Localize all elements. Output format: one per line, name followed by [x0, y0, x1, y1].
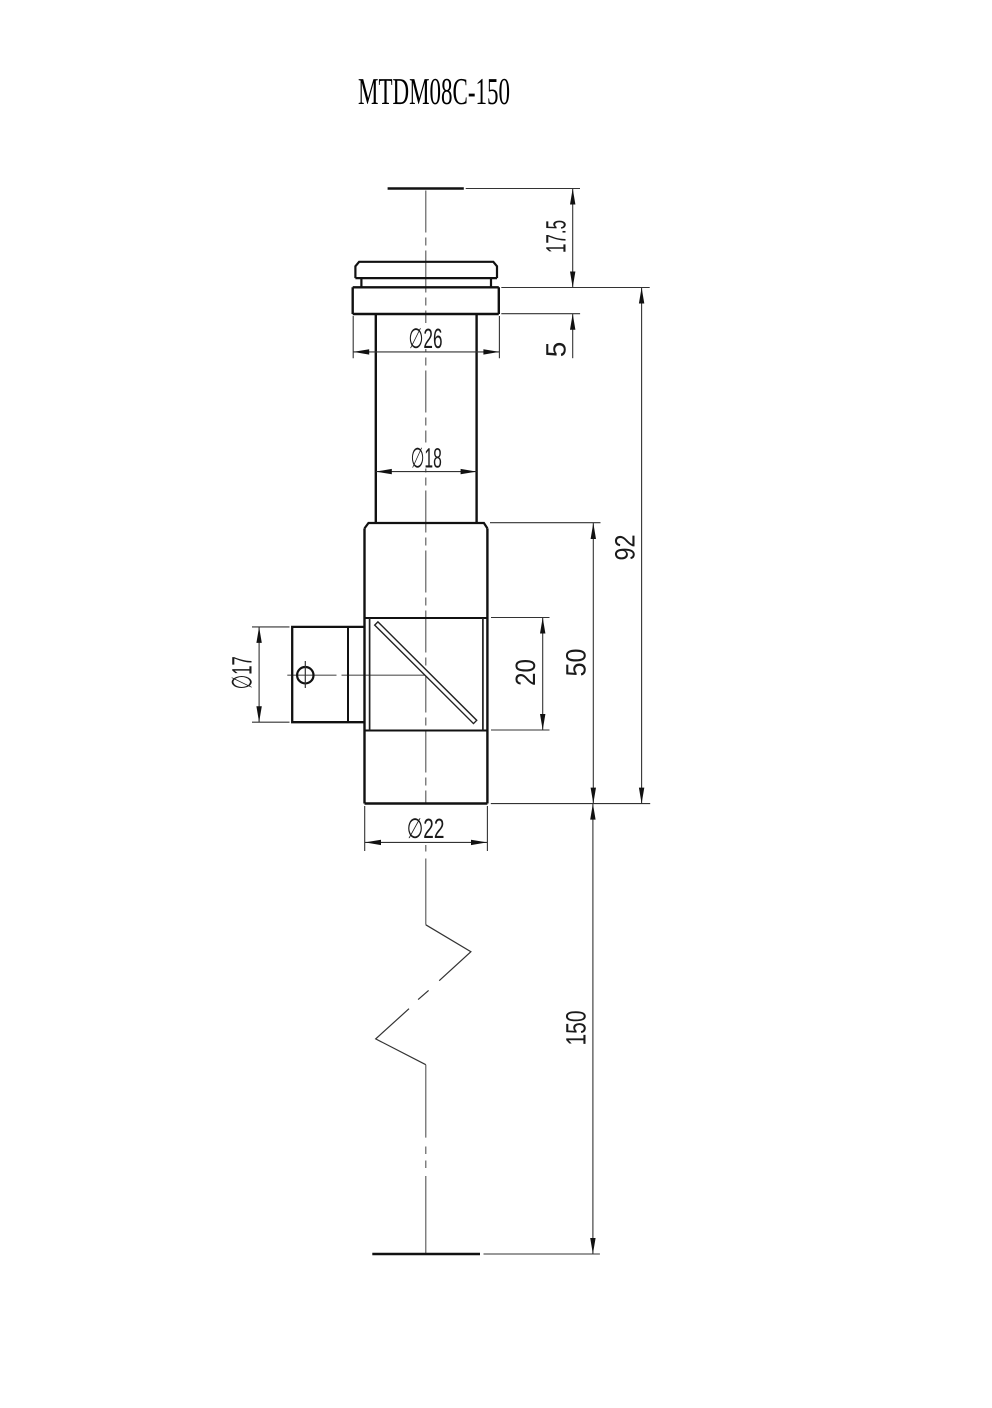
svg-text:5: 5: [540, 342, 571, 358]
svg-text:150: 150: [561, 1011, 592, 1046]
svg-text:∅17: ∅17: [227, 656, 258, 689]
svg-text:92: 92: [609, 535, 640, 561]
svg-text:50: 50: [561, 649, 592, 677]
svg-text:MTDM08C-150: MTDM08C-150: [358, 71, 510, 113]
svg-text:∅22: ∅22: [407, 813, 445, 844]
svg-text:20: 20: [510, 659, 541, 686]
svg-text:∅26: ∅26: [409, 323, 443, 354]
svg-text:17.5: 17.5: [540, 220, 571, 253]
svg-text:∅18: ∅18: [411, 443, 442, 474]
